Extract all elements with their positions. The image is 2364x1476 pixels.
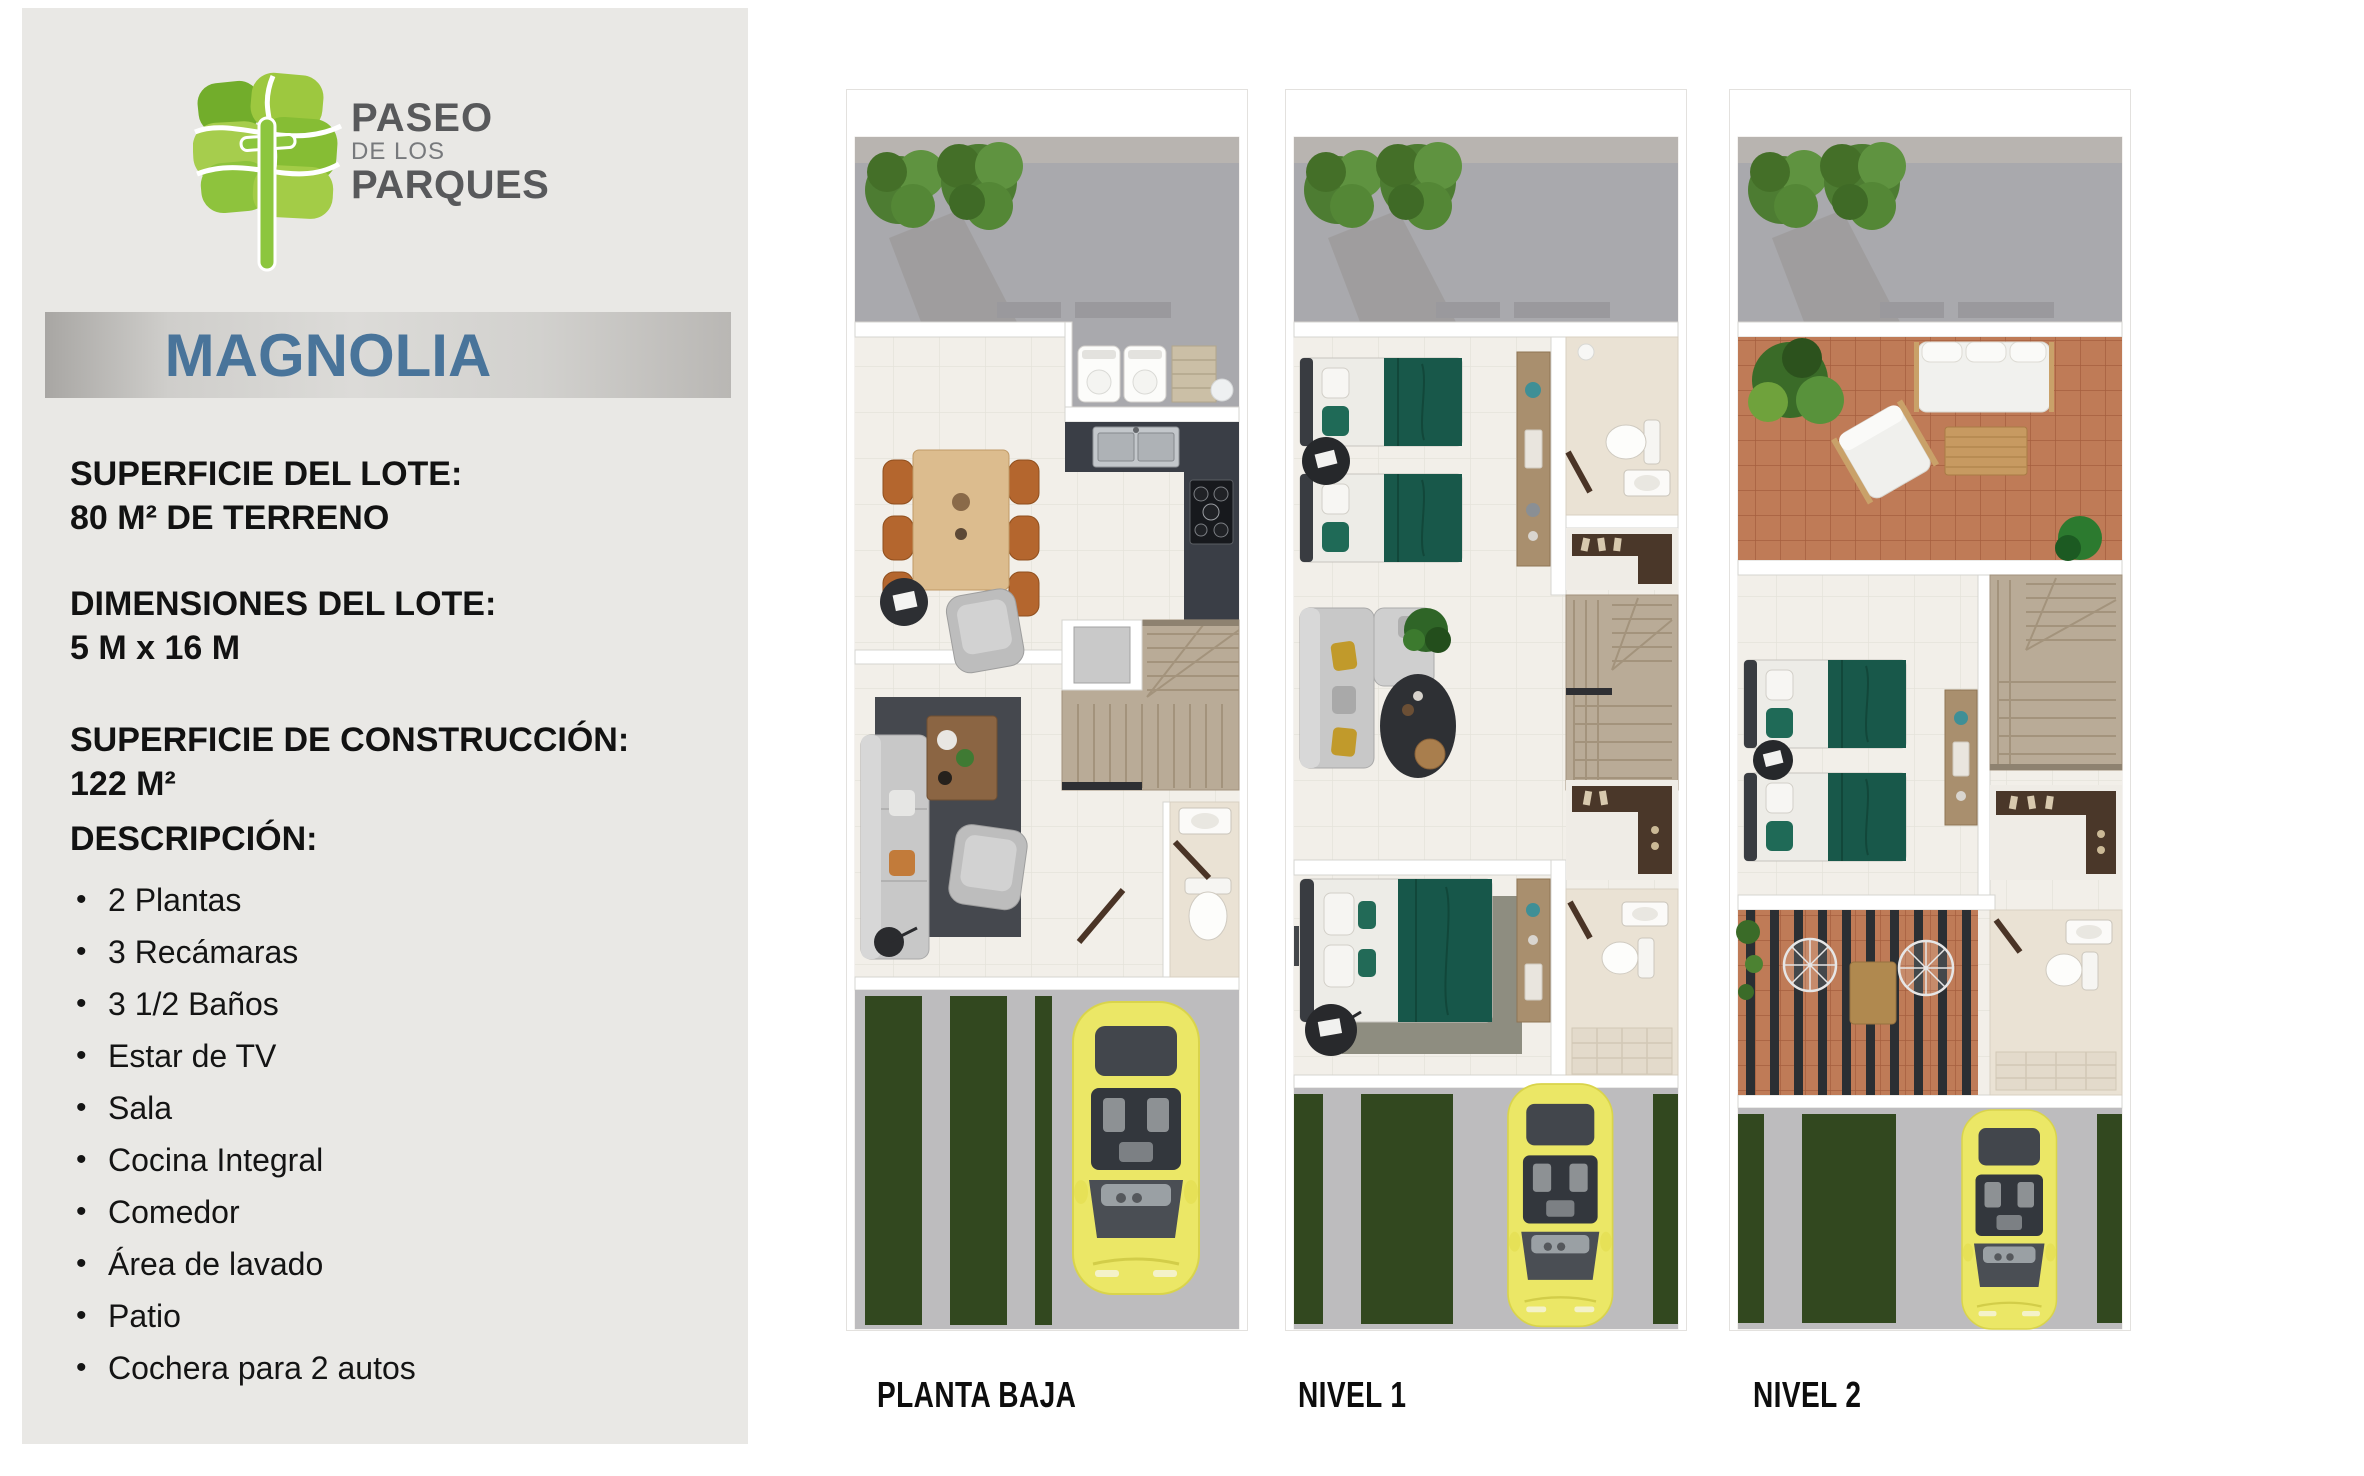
dresser <box>1517 879 1550 1022</box>
spec-label: DIMENSIONES DEL LOTE: <box>70 582 496 626</box>
list-item: Cochera para 2 autos <box>70 1342 416 1394</box>
stairs <box>1062 620 1239 790</box>
dresser <box>1517 352 1550 566</box>
floorplan-nivel-2 <box>1729 89 2131 1331</box>
patio <box>855 137 1239 322</box>
closet <box>1990 785 2122 880</box>
bathroom-sink <box>2066 920 2112 944</box>
spec-label: SUPERFICIE DEL LOTE: <box>70 452 462 496</box>
pergola-terrace <box>1736 910 1978 1095</box>
bed <box>1744 773 1906 861</box>
brand-line-3: PARQUES <box>351 166 549 204</box>
bathroom <box>1990 910 2122 1095</box>
spec-label: SUPERFICIE DE CONSTRUCCIÓN: <box>70 718 629 762</box>
patio <box>1294 137 1678 322</box>
toilet-paper <box>1578 344 1594 360</box>
wire-chair <box>1784 939 1836 991</box>
dresser <box>1945 690 1977 825</box>
shower <box>1996 1052 2116 1090</box>
bed <box>1300 358 1462 446</box>
sofa <box>861 735 929 959</box>
stairs <box>1566 595 1678 790</box>
brand-line-1: PASEO <box>351 98 549 138</box>
tree-logo-icon <box>193 70 343 276</box>
list-item: Patio <box>70 1290 416 1342</box>
spec-value: 5 M x 16 M <box>70 626 496 670</box>
car <box>1962 1110 2057 1329</box>
list-item: Área de lavado <box>70 1238 416 1290</box>
dryer <box>1124 346 1166 402</box>
spec-lot-surface: SUPERFICIE DEL LOTE: 80 M² DE TERRENO <box>70 452 462 540</box>
list-item: 3 1/2 Baños <box>70 978 416 1030</box>
list-item: 3 Recámaras <box>70 926 416 978</box>
floorplan-label-nivel-1: NIVEL 1 <box>1298 1374 1406 1416</box>
bed <box>1300 474 1462 562</box>
outdoor-sofa <box>1914 342 2054 412</box>
roof-terrace <box>1738 337 2122 561</box>
spec-value: 122 M² <box>70 762 629 806</box>
bathroom-sink <box>1179 808 1231 834</box>
dining-table <box>913 450 1009 590</box>
coffee-table <box>927 716 997 800</box>
patio <box>1738 137 2122 322</box>
nightstand <box>1753 740 1793 780</box>
laundry-basket <box>1211 379 1233 401</box>
brochure-page: PASEO DE LOS PARQUES MAGNOLIA SUPERFICIE… <box>0 0 2364 1476</box>
spec-lot-dimensions: DIMENSIONES DEL LOTE: 5 M x 16 M <box>70 582 496 670</box>
brand-logo: PASEO DE LOS PARQUES <box>193 70 613 285</box>
stairs <box>1990 575 2122 770</box>
bed <box>1744 660 1906 748</box>
car <box>1508 1084 1613 1326</box>
closet <box>1566 528 1678 590</box>
floorplan-planta-baja <box>846 89 1248 1331</box>
bathroom <box>1566 337 1678 515</box>
closet <box>1566 780 1678 880</box>
model-name: MAGNOLIA <box>165 321 492 390</box>
laundry-shelf <box>1172 346 1216 402</box>
model-title-bar: MAGNOLIA <box>45 312 731 398</box>
shower <box>1572 1028 1672 1074</box>
oval-table <box>1380 674 1456 778</box>
list-item: Comedor <box>70 1186 416 1238</box>
armchair <box>944 586 1026 675</box>
spec-value: 80 M² DE TERRENO <box>70 496 462 540</box>
car <box>1073 1002 1199 1294</box>
bathroom-sink <box>1624 470 1670 496</box>
wall-art <box>1294 926 1299 966</box>
driveway <box>855 990 1239 1329</box>
pergola-table <box>1850 962 1896 1024</box>
floorplan-label-nivel-2: NIVEL 2 <box>1753 1374 1861 1416</box>
washer <box>1078 346 1120 402</box>
brand-name: PASEO DE LOS PARQUES <box>351 98 549 204</box>
half-bathroom <box>1163 802 1239 977</box>
description-list: 2 Plantas 3 Recámaras 3 1/2 Baños Estar … <box>70 874 416 1394</box>
brand-line-2: DE LOS <box>351 138 549 166</box>
floorplan-nivel-1 <box>1285 89 1687 1331</box>
driveway <box>1294 1084 1678 1329</box>
description-heading: DESCRIPCIÓN: <box>70 820 317 859</box>
armchair <box>947 823 1029 912</box>
list-item: Sala <box>70 1082 416 1134</box>
side-table <box>880 578 928 626</box>
kitchen-sink <box>1093 427 1179 467</box>
outdoor-table <box>1945 427 2027 475</box>
driveway <box>1738 1108 2122 1329</box>
floorplan-label-planta-baja: PLANTA BAJA <box>877 1374 1076 1416</box>
list-item: Cocina Integral <box>70 1134 416 1186</box>
wire-chair <box>1899 941 1953 995</box>
bathroom <box>1566 889 1678 1075</box>
list-item: Estar de TV <box>70 1030 416 1082</box>
stove <box>1190 480 1233 544</box>
laundry-area <box>1072 322 1239 407</box>
bathroom-sink <box>1622 902 1668 926</box>
spec-construction-surface: SUPERFICIE DE CONSTRUCCIÓN: 122 M² <box>70 718 629 806</box>
nightstand <box>1302 437 1350 485</box>
master-bedroom <box>1294 879 1550 1056</box>
list-item: 2 Plantas <box>70 874 416 926</box>
master-bed <box>1300 879 1492 1022</box>
storage-cabinet <box>1074 627 1130 683</box>
